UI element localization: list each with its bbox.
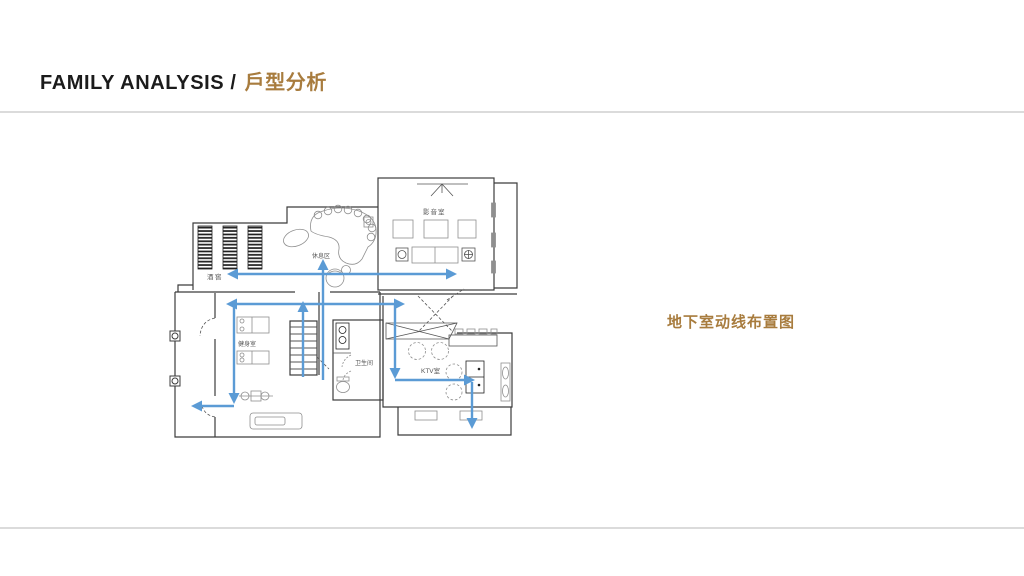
- slide: FAMILY ANALYSIS /戶型分析: [0, 0, 1024, 576]
- room-label-wine-cellar: 酒窖: [207, 272, 223, 281]
- bottom-divider: [0, 527, 1024, 529]
- page-title: FAMILY ANALYSIS /戶型分析: [40, 66, 327, 95]
- room-label-bathroom: 卫生间: [355, 359, 373, 367]
- room-label-lounge: 休息区: [312, 252, 330, 260]
- furniture: [198, 184, 510, 429]
- room-label-home-theater: 影音室: [423, 207, 446, 216]
- page-title-zh: 戶型分析: [245, 72, 327, 94]
- circulation-arrows: [191, 259, 478, 429]
- plan-caption: 地下室动线布置图: [667, 311, 795, 332]
- room-labels: 酒窖 休息区 影音室 健身室 卫生间 KTV室: [207, 207, 446, 375]
- top-divider: [0, 111, 1024, 113]
- room-label-gym: 健身室: [238, 340, 256, 348]
- walls: [175, 178, 517, 437]
- floor-plan: 酒窖 休息区 影音室 健身室 卫生间 KTV室: [165, 165, 520, 445]
- floor-plan-drawing: 酒窖 休息区 影音室 健身室 卫生间 KTV室: [165, 165, 520, 445]
- room-label-ktv: KTV室: [421, 366, 441, 375]
- page-title-en: FAMILY ANALYSIS /: [40, 72, 237, 94]
